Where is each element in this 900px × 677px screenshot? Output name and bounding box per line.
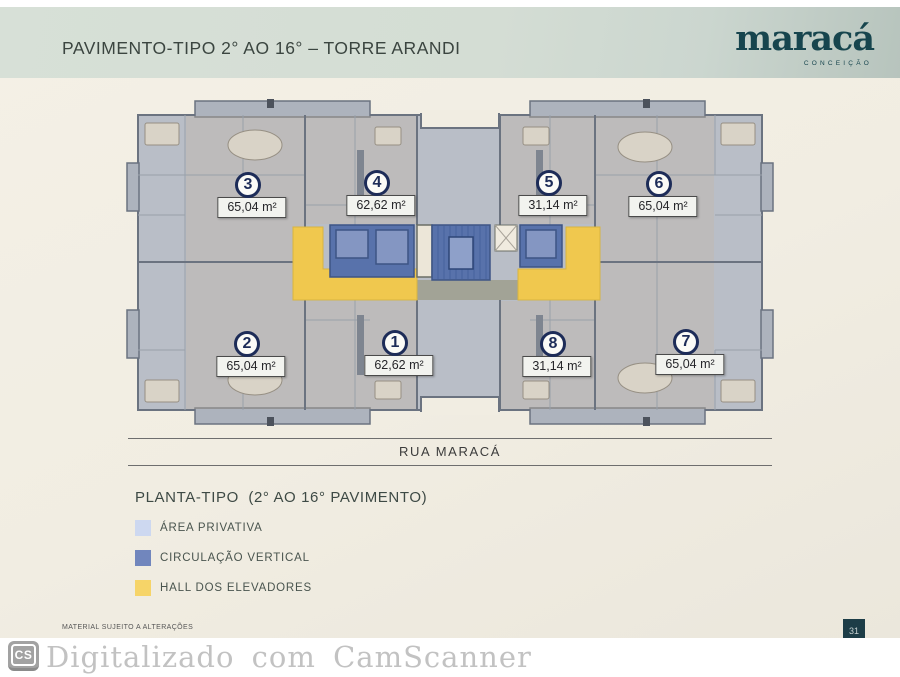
legend-row: HALL DOS ELEVADORES <box>135 580 427 596</box>
camscanner-icon-label: CS <box>11 644 36 666</box>
disclaimer-text: MATERIAL SUJEITO A ALTERAÇÕES <box>62 624 193 631</box>
unit-area-label: 65,04 m² <box>217 197 286 218</box>
street-line-bottom <box>128 465 772 466</box>
brand-logo: maracá CONCEIÇÃO <box>735 19 874 67</box>
unit-area-label: 65,04 m² <box>628 196 697 217</box>
street-band: RUA MARACÁ <box>128 438 772 466</box>
camscanner-watermark-text: Digitalizado com CamScanner <box>46 640 532 674</box>
legend-title: PLANTA-TIPO (2° AO 16° PAVIMENTO) <box>135 489 427 506</box>
legend-row: CIRCULAÇÃO VERTICAL <box>135 550 427 566</box>
unit-number-badge: 8 <box>540 331 566 357</box>
unit-area-label: 31,14 m² <box>518 195 587 216</box>
shaft-x <box>495 225 517 251</box>
hall-elevadores-swatch <box>135 580 151 596</box>
brand-subtitle: CONCEIÇÃO <box>735 60 874 67</box>
area-privativa-swatch <box>135 520 151 536</box>
unit-area-label: 65,04 m² <box>655 354 724 375</box>
unit-area-label: 65,04 m² <box>216 356 285 377</box>
floor-plan: 3 65,04 m² 4 62,62 m² 5 31,14 m² 6 65,04… <box>125 95 775 430</box>
circulacao-vertical-swatch <box>135 550 151 566</box>
camscanner-icon: CS <box>8 641 39 671</box>
corridor-area <box>417 280 518 300</box>
unit-number-badge: 6 <box>646 171 672 197</box>
brand-name: maracá <box>735 19 874 59</box>
page-title: PAVIMENTO-TIPO 2° AO 16° – TORRE ARANDI <box>62 38 461 59</box>
legend: PLANTA-TIPO (2° AO 16° PAVIMENTO) ÁREA P… <box>135 489 427 596</box>
unit-number-badge: 1 <box>382 330 408 356</box>
header-band: PAVIMENTO-TIPO 2° AO 16° – TORRE ARANDI … <box>0 7 900 78</box>
camscanner-bar: CS Digitalizado com CamScanner <box>0 638 900 677</box>
legend-label: HALL DOS ELEVADORES <box>160 582 312 594</box>
scanned-brochure-page: PAVIMENTO-TIPO 2° AO 16° – TORRE ARANDI … <box>0 7 900 638</box>
unit-number-badge: 5 <box>536 170 562 196</box>
unit-area-label: 62,62 m² <box>364 355 433 376</box>
stair-landing <box>449 237 473 269</box>
floor-plan-graphic <box>125 95 775 430</box>
unit-area-label: 62,62 m² <box>346 195 415 216</box>
unit-number-badge: 7 <box>673 329 699 355</box>
legend-label: ÁREA PRIVATIVA <box>160 522 263 534</box>
unit-number-badge: 4 <box>364 170 390 196</box>
legend-row: ÁREA PRIVATIVA <box>135 520 427 536</box>
street-label: RUA MARACÁ <box>128 439 772 465</box>
unit-number-badge: 2 <box>234 331 260 357</box>
unit-number-badge: 3 <box>235 172 261 198</box>
legend-label: CIRCULAÇÃO VERTICAL <box>160 552 310 564</box>
unit-area-label: 31,14 m² <box>522 356 591 377</box>
